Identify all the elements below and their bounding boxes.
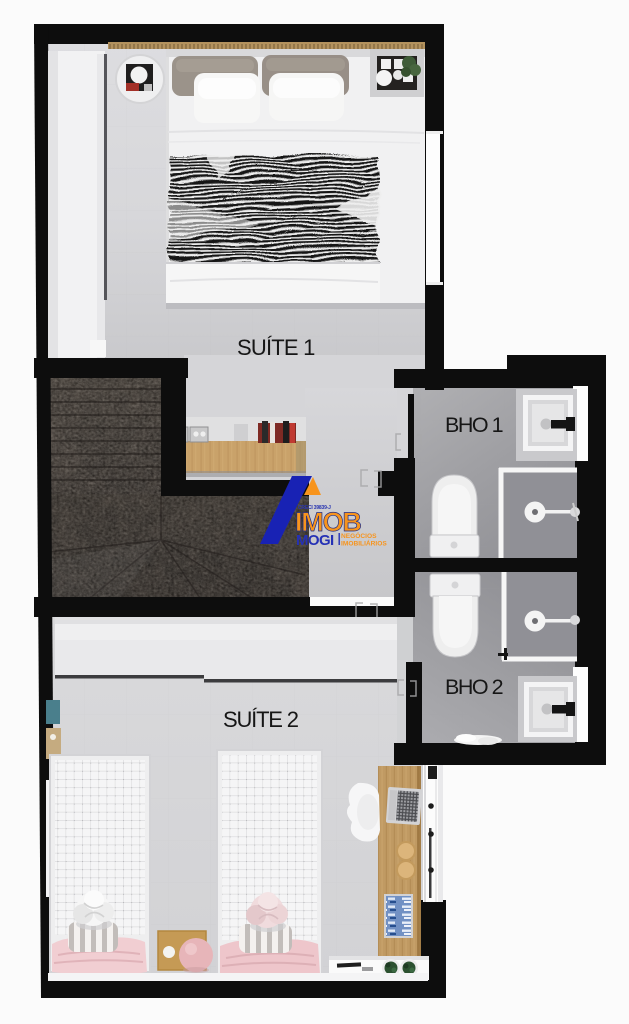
svg-text:BHO 2: BHO 2 — [445, 675, 503, 699]
svg-text:NEGÓCIOS: NEGÓCIOS — [341, 531, 377, 540]
svg-text:BHO 1: BHO 1 — [445, 413, 503, 437]
svg-text:SUÍTE 1: SUÍTE 1 — [237, 335, 315, 360]
svg-text:IMOBILIÁRIOS: IMOBILIÁRIOS — [341, 539, 387, 548]
svg-text:SUÍTE 2: SUÍTE 2 — [223, 707, 299, 732]
svg-text:MOGI: MOGI — [296, 532, 334, 549]
